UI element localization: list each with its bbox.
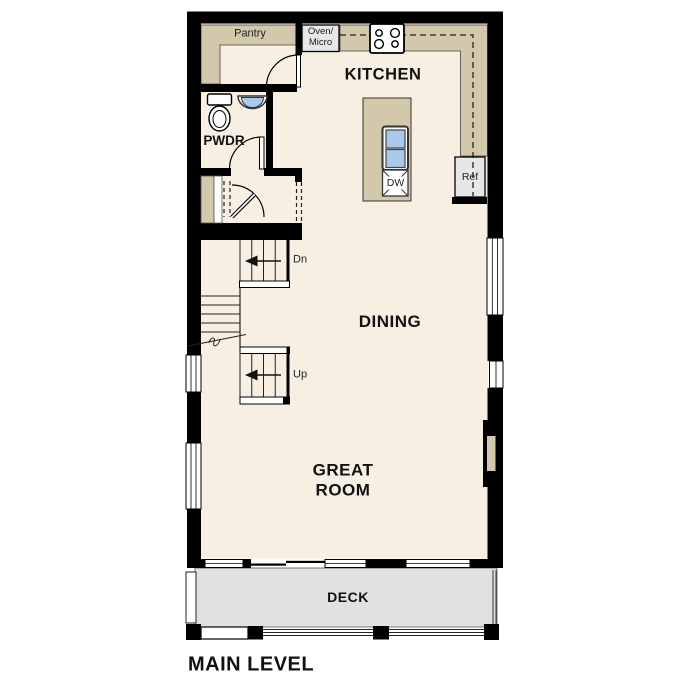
floor-plan: Pantry Oven/ Micro KITCHEN PWDR Ref DW D… <box>0 0 687 687</box>
pantry-bottom-wall <box>187 84 297 92</box>
dw-label: DW <box>387 177 405 189</box>
stairs-down-label: Dn <box>293 254 307 267</box>
deck-left-rail <box>186 572 196 623</box>
sliding-door-panel-2 <box>286 561 325 563</box>
pwdr-right-wall <box>266 92 273 169</box>
right-wall-mid1 <box>488 315 504 361</box>
dining-label: DINING <box>359 312 422 332</box>
stairs-up-top-edge <box>240 347 290 354</box>
stair-newel-post <box>283 397 290 405</box>
top-wall <box>187 12 503 24</box>
sliding-door-panel-1 <box>251 564 286 566</box>
kitchen-label: KITCHEN <box>345 66 422 85</box>
window-right-2 <box>490 361 504 388</box>
pantry-label: Pantry <box>234 28 266 41</box>
great-room-label: GREAT ROOM <box>293 460 393 499</box>
page-title: MAIN LEVEL <box>188 654 314 677</box>
entry-closet-front <box>214 176 222 223</box>
right-wall-upper <box>488 12 504 239</box>
pwdr-label: PWDR <box>203 133 244 149</box>
pwdr-bottom-wall-left <box>187 168 231 176</box>
oven-micro-label: Oven/ Micro <box>308 27 333 49</box>
stairs-up-label: Up <box>293 368 307 381</box>
left-wall-mid <box>187 392 201 443</box>
toilet <box>208 94 232 131</box>
entry-closet <box>201 176 214 223</box>
stairs-up-bottom-edge <box>240 397 290 404</box>
window-left-1 <box>186 355 201 392</box>
stairs-landing <box>240 281 290 288</box>
pwdr-bottom-wall-right <box>264 168 302 176</box>
kitchen-pantry-stub <box>296 23 303 55</box>
ref-label: Ref <box>462 171 478 183</box>
left-wall-upper <box>187 12 201 356</box>
cooktop <box>370 24 404 53</box>
window-right-1 <box>487 238 503 315</box>
entry-bottom-wall <box>187 223 302 240</box>
deck-label: DECK <box>327 589 369 605</box>
fireplace <box>483 420 503 487</box>
glass-door-wall <box>187 559 503 568</box>
island-sink <box>383 127 409 171</box>
floor-plan-drawing <box>0 0 687 687</box>
window-left-2 <box>186 443 201 509</box>
entry-kitchen-stub <box>295 176 302 182</box>
oven-micro-line2: Micro <box>308 38 333 49</box>
ref-stub-wall <box>452 197 487 204</box>
